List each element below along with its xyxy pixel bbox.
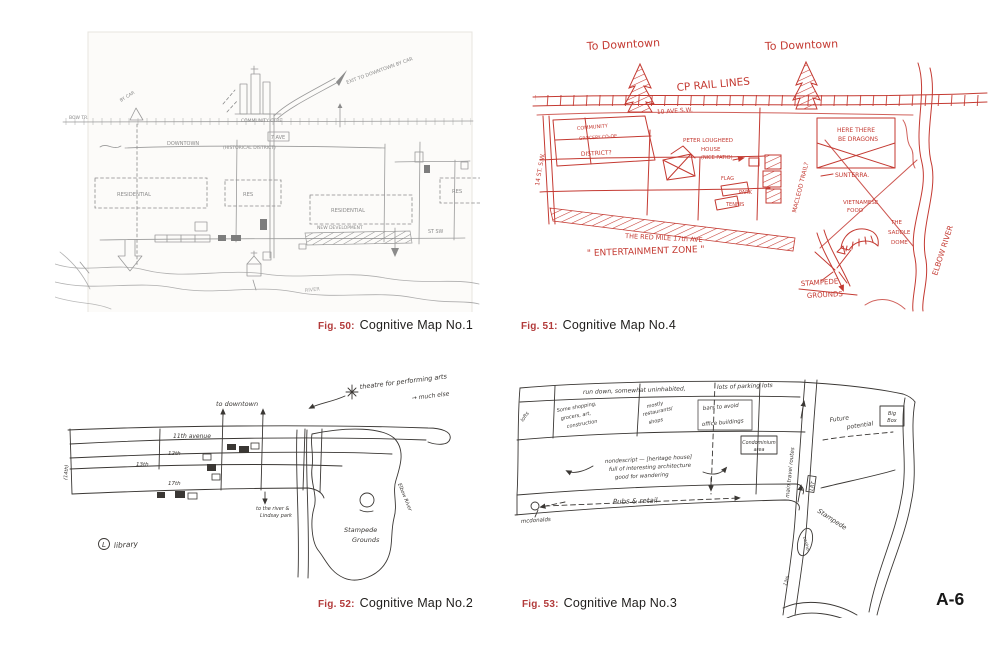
map-panel-fig51: To Downtown To Downtown CP RAIL LINES 10…: [525, 8, 995, 313]
map-label: Lindsay park: [260, 513, 293, 519]
map-panel-fig53: run down, somewhat uninhabited, lots of …: [505, 370, 935, 618]
map-label: COMMUNITY CTRE: [241, 118, 282, 124]
page-number: A-6: [936, 589, 964, 610]
map-label: RESIDENTIAL: [331, 208, 365, 214]
map-label: library: [114, 539, 139, 550]
map-label: Grounds: [352, 536, 380, 544]
figure-caption-50: Fig. 50:Cognitive Map No.1: [318, 318, 473, 332]
map-label: construction: [566, 419, 598, 430]
figure-caption-52: Fig. 52:Cognitive Map No.2: [318, 596, 473, 610]
figure-title: Cognitive Map No.4: [563, 318, 676, 332]
map-label: 17th: [168, 481, 181, 487]
avenue-band: [68, 410, 450, 498]
map-label: TENNIS: [725, 202, 744, 208]
map-label: theatre for performing arts: [359, 372, 448, 391]
map-label: 12th: [168, 451, 181, 457]
map-label: HOUSE: [701, 147, 721, 153]
map-label: L: [102, 541, 106, 549]
map-label: COMMUNITY: [577, 123, 609, 132]
document-page: COMMUNITY CTRE EXIT TO DOWNTOWN BY CAR B…: [0, 0, 1000, 648]
dragons-box: [817, 118, 895, 168]
map-label: 10 AVE S.W.: [657, 106, 693, 115]
map-label: To Downtown: [585, 36, 660, 53]
map-panel-fig50: COMMUNITY CTRE EXIT TO DOWNTOWN BY CAR B…: [55, 12, 480, 312]
map-label: 7 AVE: [271, 135, 285, 141]
map-label: BE DRAGONS: [838, 136, 878, 143]
map-label: PETER LOUGHEED: [683, 138, 733, 144]
river-edge: [869, 394, 915, 615]
map-label: NEW DEVELOPMENT: [317, 225, 363, 231]
map-label: mcdonalds: [521, 517, 551, 525]
map-label: HERE THERE: [837, 127, 875, 134]
map-label: lots of parking lots: [717, 382, 773, 391]
map-label: CP RAIL LINES: [676, 76, 751, 94]
map-label: shops: [648, 417, 664, 426]
map-label: RESIDENTIAL: [117, 192, 151, 198]
map-label: → much else: [411, 390, 450, 402]
tower-blocks: [749, 155, 781, 203]
map-label: Stampede: [816, 507, 848, 532]
map-label: ST SW: [428, 229, 444, 235]
map-label: SADDLE: [888, 230, 911, 236]
map-label: Condominium: [742, 440, 776, 446]
map-label: 14 ST. S.W.: [534, 153, 547, 187]
new-development-hatch: [305, 231, 412, 245]
map-label: " ENTERTAINMENT ZONE ": [587, 245, 705, 259]
map-label: good for wandering: [615, 472, 670, 481]
map-label: main travel routes: [785, 447, 796, 498]
map-label: DOWNTOWN: [167, 141, 199, 147]
map-label: Stampede: [344, 526, 377, 534]
cognitive-map-2-sketch: theatre for performing arts → much else …: [60, 372, 490, 592]
map-label: casino: [801, 536, 811, 552]
map-label: full of interesting architecture: [609, 463, 692, 473]
map-label: Elbow River: [396, 483, 413, 513]
figure-caption-51: Fig. 51:Cognitive Map No.4: [521, 318, 676, 332]
map-label: DISTRICT?: [581, 149, 612, 158]
map-label: Box: [887, 418, 896, 424]
map-label: area: [754, 447, 765, 453]
map-label: RES: [452, 189, 462, 195]
map-label: 11th avenue: [173, 433, 211, 440]
note-asterisk: [310, 385, 358, 408]
map-label: 13th: [782, 575, 791, 587]
map-panel-fig52: theatre for performing arts → much else …: [60, 372, 490, 592]
cognitive-map-1-sketch: COMMUNITY CTRE EXIT TO DOWNTOWN BY CAR B…: [55, 12, 480, 312]
figure-label: Fig. 50:: [318, 321, 355, 332]
figure-label: Fig. 52:: [318, 599, 355, 610]
map-label: PARK: [739, 190, 753, 196]
cognitive-map-3-sketch: run down, somewhat uninhabited, lots of …: [505, 370, 935, 618]
map-label: Some shopping,: [556, 401, 597, 414]
map-label: 13th: [136, 462, 149, 468]
map-label: to the river &: [256, 506, 290, 512]
map-label: STAMPEDE: [801, 277, 839, 288]
map-label: FOOD: [847, 208, 863, 214]
sunterra-mark: [821, 174, 833, 176]
map-label: SUNTERRA.: [835, 172, 869, 179]
map-label: potential: [845, 420, 874, 431]
cp-railway: [533, 93, 987, 106]
map-label: DOME: [891, 240, 908, 246]
figure-title: Cognitive Map No.1: [360, 318, 473, 332]
figure-title: Cognitive Map No.2: [360, 596, 473, 610]
figure-label: Fig. 51:: [521, 321, 558, 332]
map-label: VIETNAMESE: [843, 200, 879, 206]
map-label: (HISTORICAL DISTRICT): [223, 145, 276, 151]
figure-caption-53: Fig. 53:Cognitive Map No.3: [522, 596, 677, 610]
map-label: RES: [243, 192, 253, 198]
map-label: MACLEOD TRAIL?: [791, 162, 810, 214]
map-label: (14th): [63, 464, 70, 480]
map-label: Big: [888, 411, 896, 417]
figure-title: Cognitive Map No.3: [564, 596, 677, 610]
map-label: lofts: [520, 411, 531, 424]
map-label: To Downtown: [764, 37, 839, 53]
map-label: FLAG: [721, 176, 734, 182]
stampede-blob: [297, 429, 402, 580]
map-label: ELBOW RIVER: [930, 224, 955, 276]
map-label: office buildings: [702, 418, 744, 428]
map-label: Pubs & retail: [613, 496, 658, 506]
map-label: GROCERY CO-OP: [579, 133, 618, 142]
map-label: bars to avoid: [703, 403, 740, 412]
saddledome-drawing: [837, 229, 878, 254]
map-label: to downtown: [216, 400, 258, 408]
block-grid: [515, 381, 903, 515]
cognitive-map-4-sketch: To Downtown To Downtown CP RAIL LINES 10…: [525, 8, 995, 313]
map-label: (NICE PATIO): [701, 155, 733, 161]
figure-label: Fig. 53:: [522, 599, 559, 610]
map-label: THE: [890, 220, 902, 226]
red-mile-band: [550, 208, 795, 251]
map-label: BOW TR.: [69, 115, 89, 121]
map-label: run down, somewhat uninhabited,: [583, 385, 686, 396]
map-label: Future: [829, 414, 849, 424]
